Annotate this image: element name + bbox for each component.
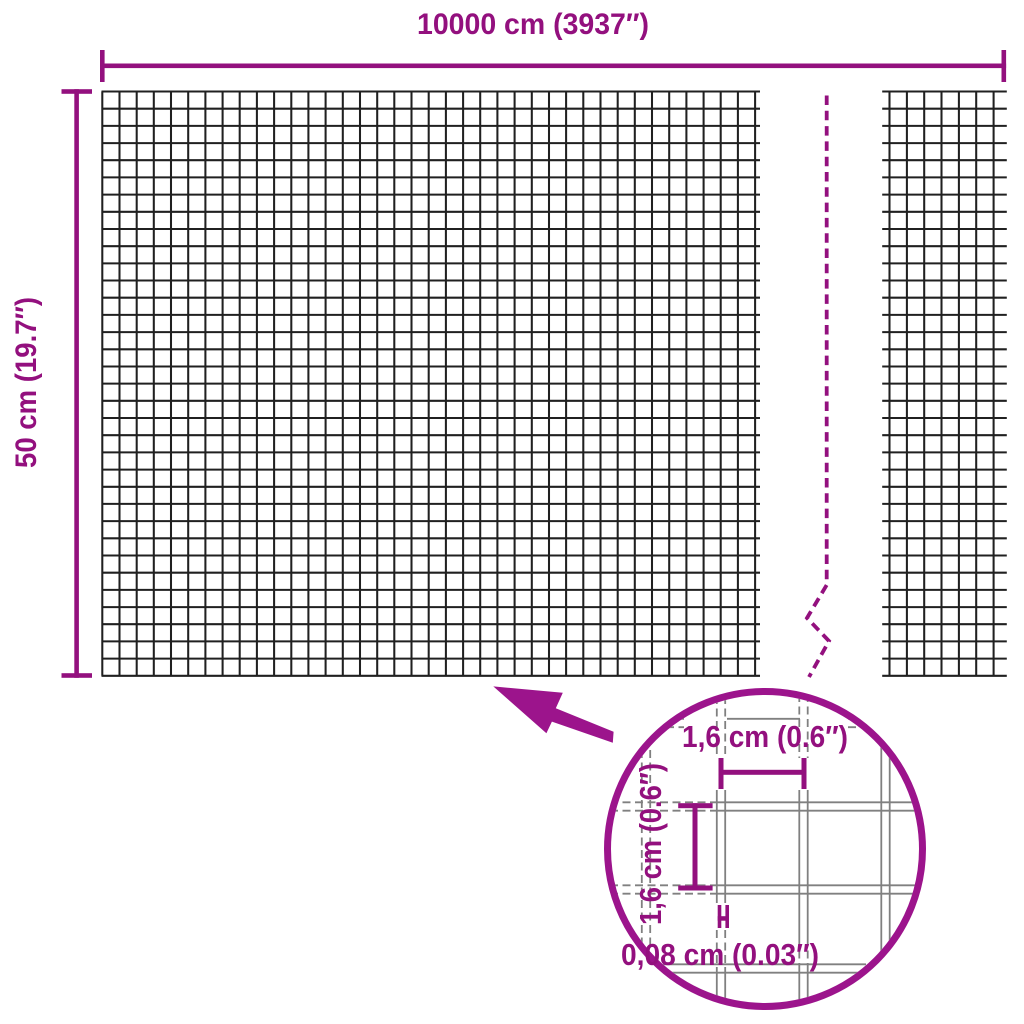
svg-text:0,08 cm (0.03″): 0,08 cm (0.03″) xyxy=(621,937,819,972)
svg-text:50 cm (19.7″): 50 cm (19.7″) xyxy=(10,297,43,468)
svg-text:10000 cm (3937″): 10000 cm (3937″) xyxy=(417,8,649,41)
svg-text:1,6 cm (0.6″): 1,6 cm (0.6″) xyxy=(633,763,668,925)
svg-text:1,6 cm (0.6″): 1,6 cm (0.6″) xyxy=(682,719,848,754)
